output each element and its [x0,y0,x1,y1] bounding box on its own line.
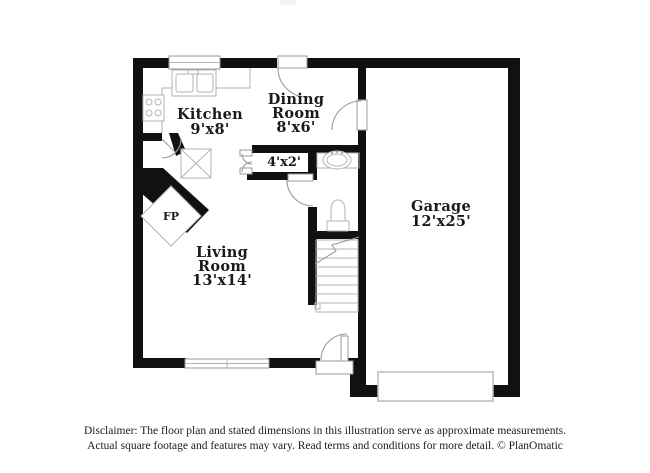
kitchen-dims: 9'x8' [190,121,229,138]
front-door-threshold [316,361,353,374]
bathroom-sink [323,151,351,169]
wall-top-right [307,58,520,68]
fireplace: FP [133,168,209,246]
kitchen-sink [172,70,216,96]
fireplace-label: FP [163,210,179,223]
stove [143,95,164,121]
garage-dims: 12'x25' [411,213,471,230]
toilet [327,200,349,231]
closet-dims: 4'x2' [267,155,301,170]
disclaimer-line2: Actual square footage and features may v… [0,439,650,454]
living-room-window [185,359,269,368]
floor-plan-drawing: FP [0,0,650,473]
kitchen-window [169,56,220,69]
garage-overhead-door [378,372,493,401]
x-marked-cabinet [181,149,211,178]
wall-top-mid [220,58,277,68]
dining-room-dims: 8'x6' [276,119,315,136]
wall-left [133,58,143,368]
wall-bottom-living-mid [268,358,320,368]
room-labels: Kitchen 9'x8' Dining Room 8'x6' 4'x2' Li… [177,91,471,289]
front-door [316,334,353,374]
scan-artifact [280,0,296,5]
living-room-dims: 13'x14' [192,272,252,289]
floor-plan-image: FP [0,0,650,473]
wall-garage-upper [358,68,366,100]
bathroom-door [287,174,313,206]
disclaimer-line1: Disclaimer: The floor plan and stated di… [0,424,650,439]
staircase [315,237,359,312]
disclaimer: Disclaimer: The floor plan and stated di… [0,424,650,455]
garage-entry-door [332,100,367,130]
wall-kitchen-stub [133,133,162,141]
wall-right [508,58,520,397]
wall-bottom-living-left [133,358,186,368]
closet-double-doors [240,150,252,174]
